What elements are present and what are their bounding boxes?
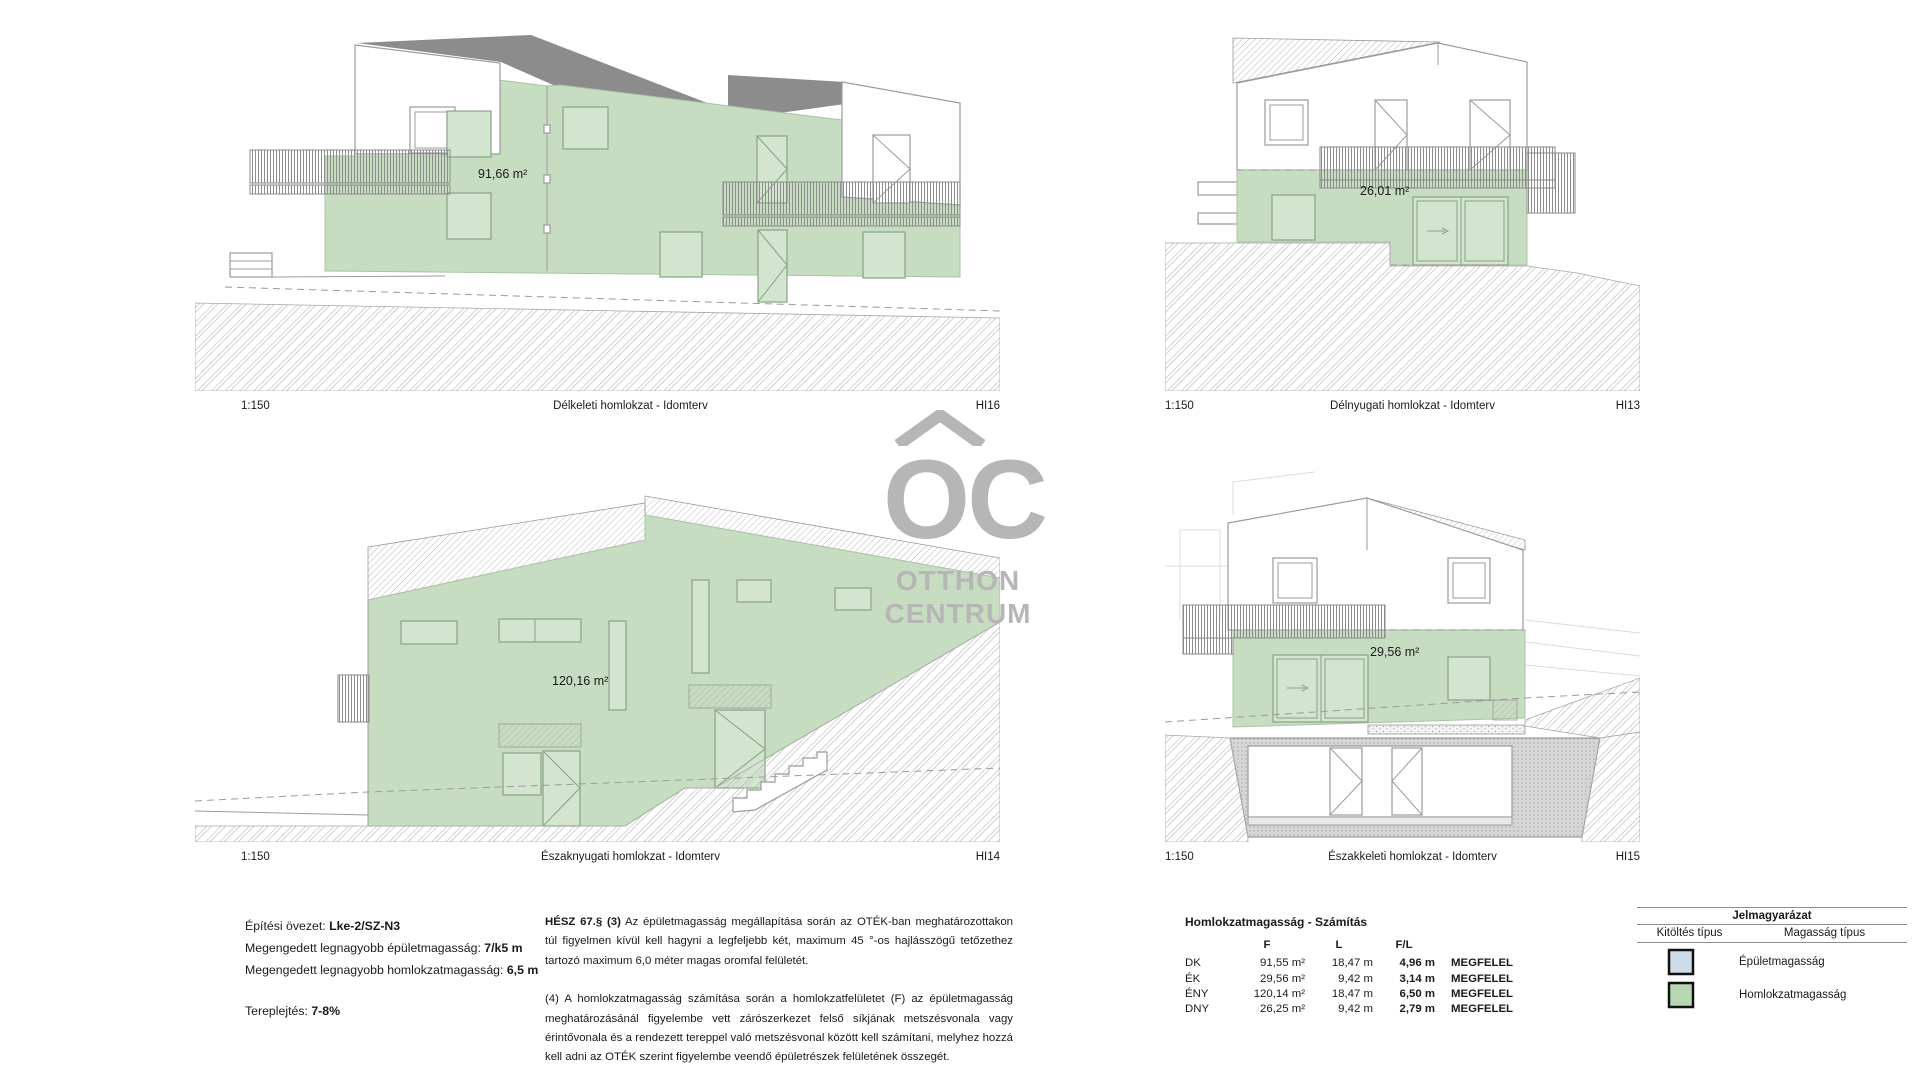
basement-section	[1230, 725, 1600, 837]
legend-item-label: Homlokzatmagasság	[1739, 989, 1846, 1001]
row-f: 91,55 m²	[1229, 956, 1305, 971]
drawing-southeast-elevation: 91,66 m² 1:150 Délkeleti homlokzat - Ido…	[195, 25, 1000, 412]
legend-col-fill: Kitöltés típus	[1637, 927, 1742, 939]
col-header-fl: F/L	[1373, 938, 1435, 953]
drawing-caption: 1:150 Délkeleti homlokzat - Idomterv HI1…	[195, 400, 1000, 412]
terrain-slope: Tereplejtés: 7-8%	[245, 1000, 545, 1022]
drawing-caption: 1:150 Északkeleti homlokzat - Idomterv H…	[1165, 851, 1640, 863]
col-header-f: F	[1229, 938, 1305, 953]
max-building-height: Megengedett legnagyobb épületmagasság: 7…	[245, 937, 545, 959]
drawing-title: Délkeleti homlokzat - Idomterv	[331, 400, 930, 412]
balcony-railing	[338, 675, 369, 722]
legend: Jelmagyarázat Kitöltés típus Magasság tí…	[1637, 907, 1907, 1009]
row-l: 18,47 m	[1305, 956, 1373, 971]
row-status: MEGFELEL	[1435, 1002, 1527, 1017]
drawing-title: Északnyugati homlokzat - Idomterv	[331, 851, 930, 863]
regulation-text: HÉSZ 67.§ (3) Az épületmagasság megállap…	[545, 913, 1013, 1068]
building-height-swatch	[1667, 948, 1695, 976]
calculation-table: F L F/L DK 91,55 m² 18,47 m 4,96 m MEGFE…	[1185, 938, 1505, 1017]
facade-area-label: 26,01 m²	[1360, 184, 1409, 198]
watermark-oc: OC	[883, 448, 1033, 551]
legend-item: Épületmagasság	[1637, 948, 1907, 976]
drawing-title: Délnyugati homlokzat - Idomterv	[1255, 400, 1570, 412]
facade-height-calculation: Homlokzatmagasság - Számítás F L F/L DK …	[1185, 915, 1505, 1017]
legend-divider	[1637, 942, 1907, 943]
zoning-district: Építési övezet: Lke-2/SZ-N3	[245, 915, 545, 937]
row-dir: DK	[1185, 956, 1229, 971]
drawing-caption: 1:150 Északnyugati homlokzat - Idomterv …	[195, 851, 1000, 863]
row-dir: ÉK	[1185, 972, 1229, 987]
terrain	[1165, 243, 1640, 391]
calculation-title: Homlokzatmagasság - Számítás	[1185, 915, 1505, 929]
regulation-paragraph-3: HÉSZ 67.§ (3) Az épületmagasság megállap…	[545, 913, 1013, 971]
row-fl: 3,14 m	[1373, 972, 1435, 987]
legend-col-height: Magasság típus	[1742, 927, 1907, 939]
elevation-sheet: 91,66 m² 1:150 Délkeleti homlokzat - Ido…	[0, 0, 1920, 1074]
row-l: 18,47 m	[1305, 987, 1373, 1002]
northwest-elevation-art: 120,16 m²	[195, 470, 1000, 842]
row-fl: 2,79 m	[1373, 1002, 1435, 1017]
row-l: 9,42 m	[1305, 1002, 1373, 1017]
northeast-elevation-art: 29,56 m²	[1165, 470, 1640, 842]
row-status: MEGFELEL	[1435, 972, 1527, 987]
facade-area-label: 91,66 m²	[478, 167, 527, 181]
row-dir: DNY	[1185, 1002, 1229, 1017]
row-l: 9,42 m	[1305, 972, 1373, 987]
drawing-northwest-elevation: 120,16 m² 1:150 Északnyugati homlokzat -…	[195, 470, 1000, 863]
row-f: 29,56 m²	[1229, 972, 1305, 987]
col-header-l: L	[1305, 938, 1373, 953]
zoning-info: Építési övezet: Lke-2/SZ-N3 Megengedett …	[245, 915, 545, 1022]
row-status: MEGFELEL	[1435, 956, 1527, 971]
legend-item-label: Épületmagasság	[1739, 956, 1825, 968]
drawing-southwest-elevation: 26,01 m² 1:150 Délnyugati homlokzat - Id…	[1165, 25, 1640, 412]
row-f: 26,25 m²	[1229, 1002, 1305, 1017]
facade-height-swatch	[1667, 981, 1695, 1009]
drawing-code: HI15	[1570, 851, 1640, 863]
legend-title: Jelmagyarázat	[1637, 908, 1907, 924]
row-dir: ÉNY	[1185, 987, 1229, 1002]
legend-item: Homlokzatmagasság	[1637, 981, 1907, 1009]
row-fl: 4,96 m	[1373, 956, 1435, 971]
max-facade-height: Megengedett legnagyobb homlokzatmagasság…	[245, 959, 545, 981]
row-status: MEGFELEL	[1435, 987, 1527, 1002]
otthon-centrum-watermark: OC OTTHON CENTRUM	[883, 410, 1033, 628]
facade-area-label: 120,16 m²	[552, 674, 608, 688]
drawing-scale: 1:150	[195, 851, 331, 863]
drawing-northeast-elevation: 29,56 m² 1:150 Északkeleti homlokzat - I…	[1165, 470, 1640, 863]
row-fl: 6,50 m	[1373, 987, 1435, 1002]
drawing-title: Északkeleti homlokzat - Idomterv	[1255, 851, 1570, 863]
row-f: 120,14 m²	[1229, 987, 1305, 1002]
watermark-centrum: CENTRUM	[883, 600, 1033, 628]
drawing-caption: 1:150 Délnyugati homlokzat - Idomterv HI…	[1165, 400, 1640, 412]
drawing-scale: 1:150	[195, 400, 331, 412]
drawing-scale: 1:150	[1165, 400, 1255, 412]
watermark-otthon: OTTHON	[883, 567, 1033, 595]
drawing-scale: 1:150	[1165, 851, 1255, 863]
drawing-code: HI14	[930, 851, 1000, 863]
regulation-paragraph-4: (4) A homlokzatmagasság számítása során …	[545, 990, 1013, 1068]
facade-area-label: 29,56 m²	[1370, 645, 1419, 659]
southeast-elevation-art: 91,66 m²	[195, 25, 1000, 391]
drawing-code: HI13	[1570, 400, 1640, 412]
legend-headers: Kitöltés típus Magasság típus	[1637, 925, 1907, 942]
southwest-elevation-art: 26,01 m²	[1165, 25, 1640, 391]
